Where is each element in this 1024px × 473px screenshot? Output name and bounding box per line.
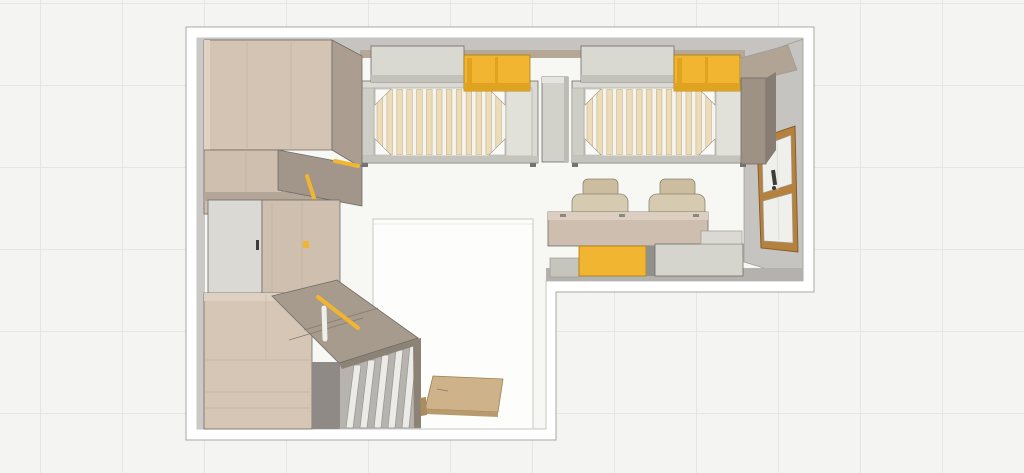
room-plan-canvas[interactable]: Top-down 3D rendering of an L-shaped chi… <box>0 0 1024 473</box>
bed-2[interactable]: Bed 2 with slatted base, pillow and yell… <box>572 46 748 167</box>
drawer-divider <box>646 246 655 276</box>
wardrobe-side-panel <box>262 200 340 295</box>
wardrobe-top-face <box>204 40 332 150</box>
door-handle-icon <box>256 240 259 250</box>
wardrobe-front-face <box>332 40 362 168</box>
yellow-knob-icon <box>303 241 309 248</box>
window-handle-knob <box>772 186 776 190</box>
platform-recess <box>312 362 340 429</box>
desk-hinge <box>560 214 566 217</box>
screen-right-frame <box>413 338 421 428</box>
desk-hinge <box>693 214 699 217</box>
yellow-drawer-unit[interactable]: Yellow under-desk drawer unit <box>579 246 646 276</box>
desk-side-shelf <box>701 231 742 244</box>
desk-plinth <box>550 258 579 277</box>
wardrobe-door <box>208 200 262 294</box>
white-pull-icon <box>324 308 325 339</box>
desk-top-edge <box>548 212 708 220</box>
nightstand-column[interactable]: Divider column between beds <box>542 77 568 162</box>
wardrobe-door-unit[interactable]: Wardrobe with hinged door <box>208 200 340 295</box>
gray-drawer-unit[interactable]: Gray under-desk drawer unit <box>655 244 743 276</box>
floor-board[interactable]: Wooden board on floor <box>420 376 503 417</box>
bed-1[interactable]: Bed 1 with slatted base, pillow and yell… <box>362 46 538 167</box>
desk-hinge <box>619 214 625 217</box>
room-planner-stage: Top-down 3D rendering of an L-shaped chi… <box>0 0 1024 473</box>
